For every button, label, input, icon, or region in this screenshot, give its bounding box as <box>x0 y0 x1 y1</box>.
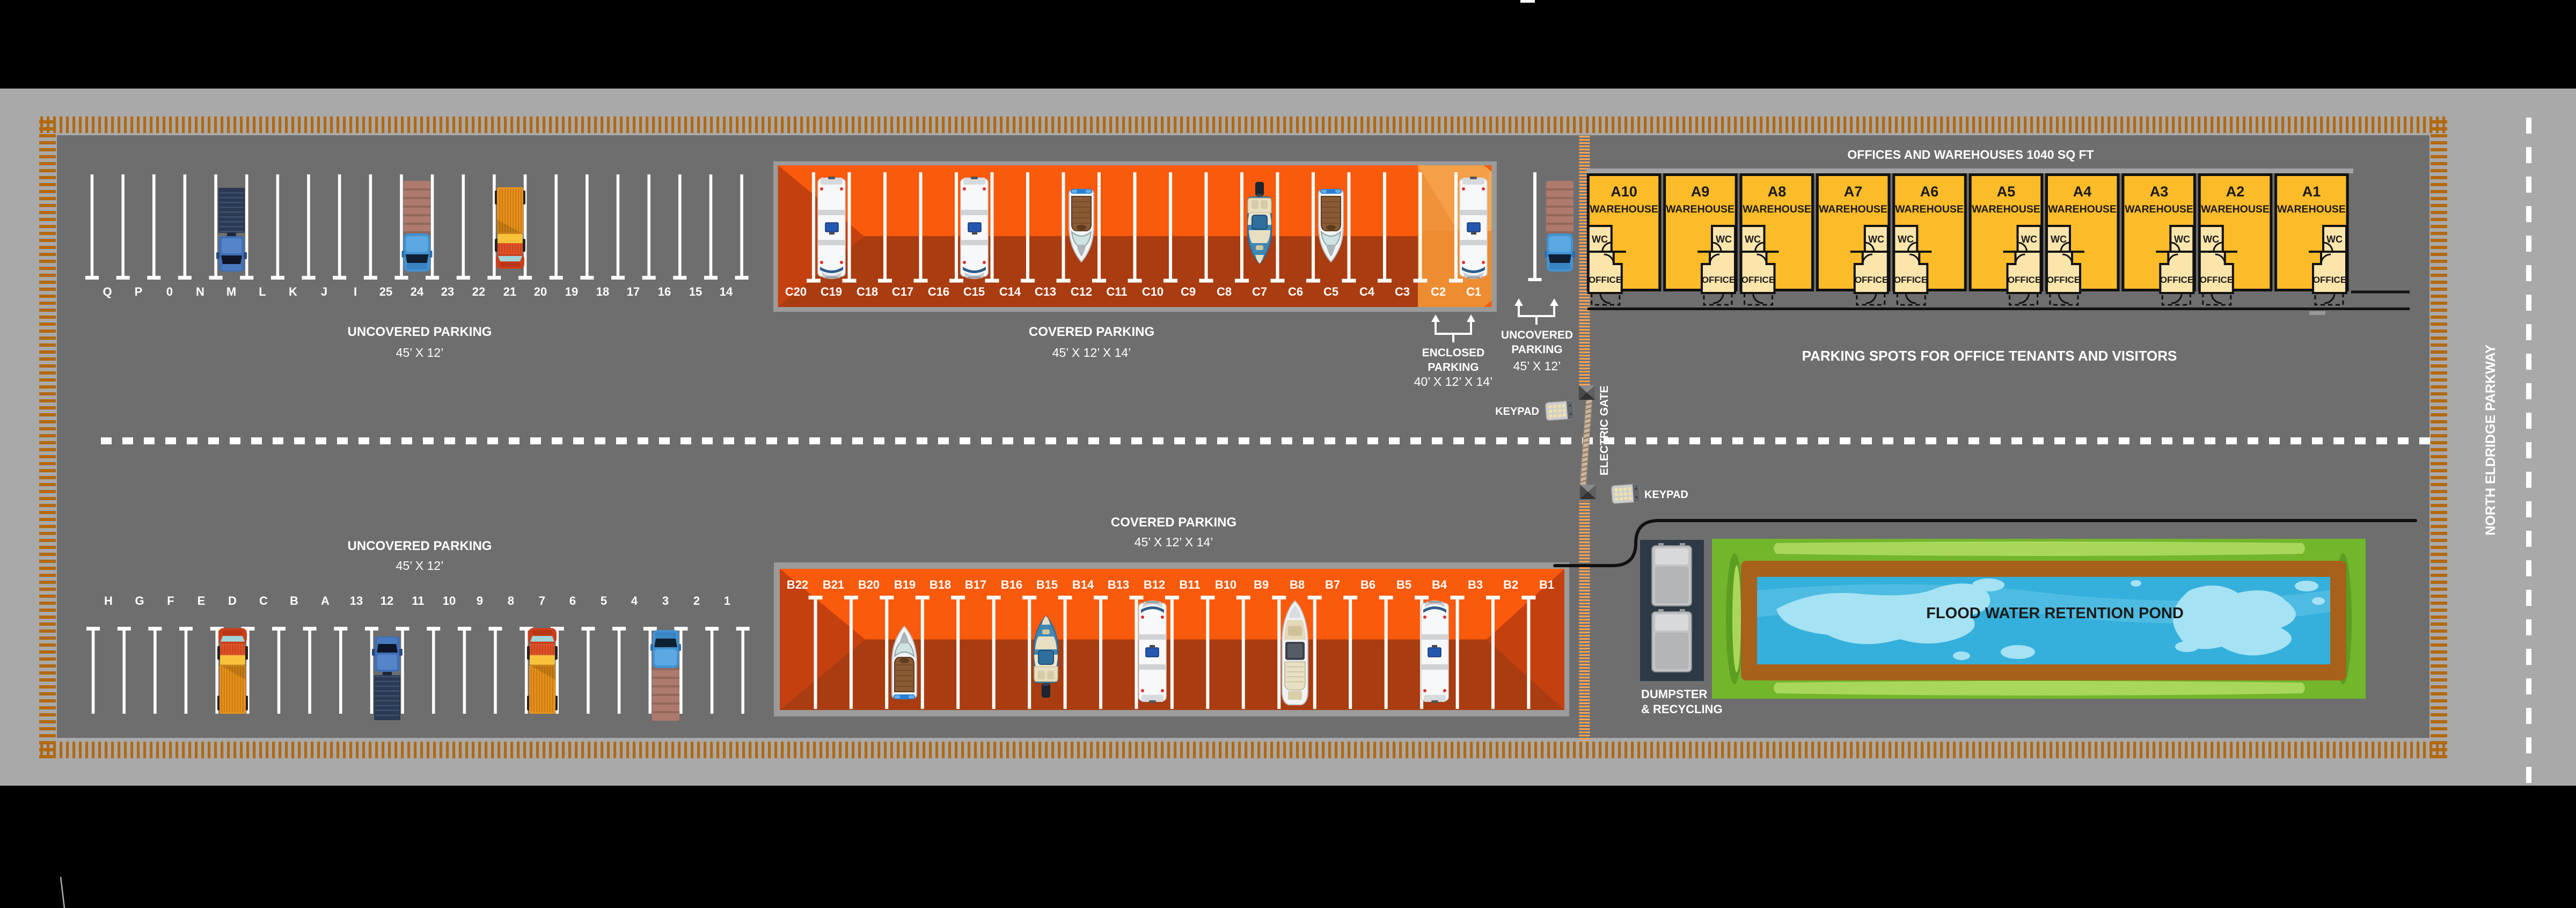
svg-text:9: 9 <box>477 594 483 607</box>
svg-text:22: 22 <box>472 285 485 298</box>
svg-text:P: P <box>135 285 143 298</box>
svg-text:16: 16 <box>658 285 671 298</box>
svg-text:WAREHOUSE: WAREHOUSE <box>2048 203 2117 215</box>
svg-text:13: 13 <box>350 594 363 607</box>
svg-text:B21: B21 <box>823 578 844 591</box>
svg-text:WC: WC <box>1716 234 1732 245</box>
svg-text:7: 7 <box>539 594 545 607</box>
svg-text:K: K <box>289 285 297 298</box>
svg-text:C4: C4 <box>1359 285 1375 298</box>
svg-text:G: G <box>135 594 144 607</box>
svg-text:OFFICE: OFFICE <box>1741 275 1775 285</box>
svg-text:WAREHOUSE: WAREHOUSE <box>2125 203 2193 215</box>
svg-text:B12: B12 <box>1144 578 1165 591</box>
svg-text:N: N <box>196 285 204 298</box>
svg-text:23: 23 <box>441 285 454 298</box>
svg-text:OFFICE: OFFICE <box>2008 275 2041 285</box>
svg-text:C19: C19 <box>821 285 842 298</box>
svg-text:C10: C10 <box>1142 285 1163 298</box>
svg-text:18: 18 <box>596 285 609 298</box>
svg-text:C16: C16 <box>928 285 949 298</box>
svg-text:B3: B3 <box>1468 578 1483 591</box>
svg-text:C17: C17 <box>892 285 913 298</box>
svg-text:B6: B6 <box>1360 578 1375 591</box>
svg-text:C15: C15 <box>963 285 985 298</box>
svg-text:OFFICE: OFFICE <box>2313 275 2346 285</box>
svg-text:B: B <box>290 594 298 607</box>
svg-text:A: A <box>321 594 330 607</box>
svg-text:C20: C20 <box>785 285 807 298</box>
svg-text:4: 4 <box>631 594 638 607</box>
svg-text:B16: B16 <box>1001 578 1022 591</box>
svg-text:OFFICE: OFFICE <box>1855 275 1888 285</box>
svg-text:B18: B18 <box>930 578 951 591</box>
svg-text:C1: C1 <box>1466 285 1481 298</box>
svg-text:C12: C12 <box>1071 285 1092 298</box>
svg-text:DUMPSTER: DUMPSTER <box>1641 687 1708 701</box>
svg-text:COVERED PARKING: COVERED PARKING <box>1111 515 1236 530</box>
svg-text:5: 5 <box>601 594 607 607</box>
svg-text:B22: B22 <box>787 578 808 591</box>
svg-text:17: 17 <box>627 285 640 298</box>
svg-text:12: 12 <box>380 594 393 607</box>
svg-text:C14: C14 <box>999 285 1021 298</box>
svg-text:15: 15 <box>689 285 702 298</box>
svg-text:I: I <box>354 285 357 298</box>
svg-text:WAREHOUSE: WAREHOUSE <box>1590 203 1658 215</box>
svg-text:C7: C7 <box>1252 285 1267 298</box>
svg-text:B5: B5 <box>1396 578 1411 591</box>
svg-text:0: 0 <box>166 285 173 298</box>
svg-text:B9: B9 <box>1254 578 1269 591</box>
svg-text:A4: A4 <box>2073 184 2092 200</box>
svg-text:UNCOVERED: UNCOVERED <box>1501 329 1573 341</box>
svg-text:40’ X 12’ X 14’: 40’ X 12’ X 14’ <box>1414 375 1493 389</box>
svg-text:45’ X 12’: 45’ X 12’ <box>396 559 444 573</box>
svg-text:A8: A8 <box>1768 184 1787 200</box>
svg-text:C2: C2 <box>1431 285 1446 298</box>
svg-text:11: 11 <box>412 594 424 607</box>
svg-text:A1: A1 <box>2302 184 2321 200</box>
svg-text:A9: A9 <box>1691 184 1710 200</box>
svg-text:B14: B14 <box>1072 578 1094 591</box>
svg-text:A6: A6 <box>1920 184 1939 200</box>
svg-text:ELECTRIC GATE: ELECTRIC GATE <box>1598 385 1611 475</box>
svg-text:C5: C5 <box>1323 285 1338 298</box>
svg-text:45’ X 12’: 45’ X 12’ <box>396 346 444 360</box>
svg-text:B17: B17 <box>965 578 986 591</box>
svg-text:B10: B10 <box>1215 578 1236 591</box>
svg-text:WC: WC <box>2021 234 2037 245</box>
svg-text:M: M <box>226 285 236 298</box>
svg-text:WC: WC <box>1868 234 1884 245</box>
svg-text:19: 19 <box>565 285 578 298</box>
svg-text:H: H <box>104 594 113 607</box>
svg-text:COVERED PARKING: COVERED PARKING <box>1029 325 1154 339</box>
svg-text:UNCOVERED PARKING: UNCOVERED PARKING <box>348 325 492 339</box>
svg-text:KEYPAD: KEYPAD <box>1644 489 1688 501</box>
svg-text:WC: WC <box>2174 234 2190 245</box>
svg-text:WC: WC <box>1745 234 1761 245</box>
svg-text:E: E <box>197 594 206 607</box>
svg-text:OFFICES AND WAREHOUSES 1040 SQ: OFFICES AND WAREHOUSES 1040 SQ FT <box>1847 148 2094 162</box>
svg-text:C18: C18 <box>857 285 878 298</box>
svg-text:WC: WC <box>1898 234 1914 245</box>
svg-text:OFFICE: OFFICE <box>2047 275 2080 285</box>
svg-text:20: 20 <box>534 285 547 298</box>
svg-text:PARKING SPOTS FOR OFFICE TENAN: PARKING SPOTS FOR OFFICE TENANTS AND VIS… <box>1802 348 2177 364</box>
svg-text:C3: C3 <box>1395 285 1410 298</box>
svg-text:WC: WC <box>2203 234 2219 245</box>
svg-text:10: 10 <box>443 594 456 607</box>
svg-text:KEYPAD: KEYPAD <box>1495 406 1539 418</box>
svg-text:A5: A5 <box>1997 184 2016 200</box>
svg-text:NORTH ELDRIDGE PARKWAY: NORTH ELDRIDGE PARKWAY <box>2483 345 2498 536</box>
svg-text:B1: B1 <box>1539 578 1554 591</box>
svg-text:C13: C13 <box>1035 285 1056 298</box>
svg-text:B13: B13 <box>1108 578 1129 591</box>
svg-text:45’ X 12’ X 14’: 45’ X 12’ X 14’ <box>1135 535 1213 549</box>
svg-text:6: 6 <box>569 594 576 607</box>
svg-text:24: 24 <box>411 285 424 298</box>
svg-text:B19: B19 <box>894 578 916 591</box>
svg-text:FLOOD WATER RETENTION POND: FLOOD WATER RETENTION POND <box>1926 605 2184 622</box>
svg-text:WAREHOUSE: WAREHOUSE <box>1819 203 1887 215</box>
svg-text:& RECYCLING: & RECYCLING <box>1641 702 1723 716</box>
svg-text:WC: WC <box>2051 234 2067 245</box>
svg-text:8: 8 <box>508 594 514 607</box>
svg-text:B2: B2 <box>1503 578 1518 591</box>
svg-text:WAREHOUSE: WAREHOUSE <box>1895 203 1964 215</box>
svg-text:A7: A7 <box>1844 184 1863 200</box>
svg-text:ENCLOSED: ENCLOSED <box>1422 347 1485 359</box>
svg-text:OFFICE: OFFICE <box>1589 275 1622 285</box>
svg-text:OFFICE: OFFICE <box>1894 275 1927 285</box>
svg-text:14: 14 <box>720 285 733 298</box>
svg-text:WAREHOUSE: WAREHOUSE <box>1972 203 2040 215</box>
svg-text:B11: B11 <box>1179 578 1200 591</box>
svg-text:A2: A2 <box>2226 184 2245 200</box>
svg-text:WAREHOUSE: WAREHOUSE <box>1666 203 1735 215</box>
svg-text:2: 2 <box>693 594 700 607</box>
svg-text:25: 25 <box>379 285 392 298</box>
svg-text:B20: B20 <box>858 578 880 591</box>
svg-text:Q: Q <box>103 285 112 298</box>
svg-text:OFFICE: OFFICE <box>2200 275 2233 285</box>
svg-text:F: F <box>167 594 174 607</box>
svg-text:1: 1 <box>724 594 730 607</box>
svg-text:21: 21 <box>503 285 516 298</box>
svg-text:B8: B8 <box>1290 578 1305 591</box>
svg-text:J: J <box>321 285 327 298</box>
svg-text:OFFICE: OFFICE <box>2160 275 2193 285</box>
svg-text:A3: A3 <box>2150 184 2169 200</box>
svg-text:3: 3 <box>662 594 669 607</box>
svg-text:WC: WC <box>1592 234 1608 245</box>
svg-text:WC: WC <box>2326 234 2343 245</box>
svg-text:PARKING: PARKING <box>1428 361 1479 374</box>
svg-text:B15: B15 <box>1036 578 1058 591</box>
svg-text:45’ X 12’ X 14’: 45’ X 12’ X 14’ <box>1052 346 1131 360</box>
svg-text:WAREHOUSE: WAREHOUSE <box>2277 203 2346 215</box>
svg-text:OFFICE: OFFICE <box>1702 275 1735 285</box>
svg-text:L: L <box>259 285 266 298</box>
svg-text:PARKING: PARKING <box>1511 343 1562 356</box>
svg-text:B7: B7 <box>1325 578 1340 591</box>
svg-text:WAREHOUSE: WAREHOUSE <box>1743 203 1811 215</box>
svg-text:C8: C8 <box>1217 285 1232 298</box>
svg-text:WAREHOUSE: WAREHOUSE <box>2201 203 2270 215</box>
svg-text:C11: C11 <box>1106 285 1127 298</box>
svg-text:C9: C9 <box>1181 285 1196 298</box>
svg-text:A10: A10 <box>1611 184 1637 200</box>
svg-text:UNCOVERED PARKING: UNCOVERED PARKING <box>348 539 492 553</box>
svg-text:B4: B4 <box>1432 578 1447 591</box>
svg-text:D: D <box>228 594 237 607</box>
svg-text:C6: C6 <box>1288 285 1303 298</box>
svg-text:C: C <box>259 594 268 607</box>
svg-text:45’ X 12’: 45’ X 12’ <box>1513 359 1561 373</box>
